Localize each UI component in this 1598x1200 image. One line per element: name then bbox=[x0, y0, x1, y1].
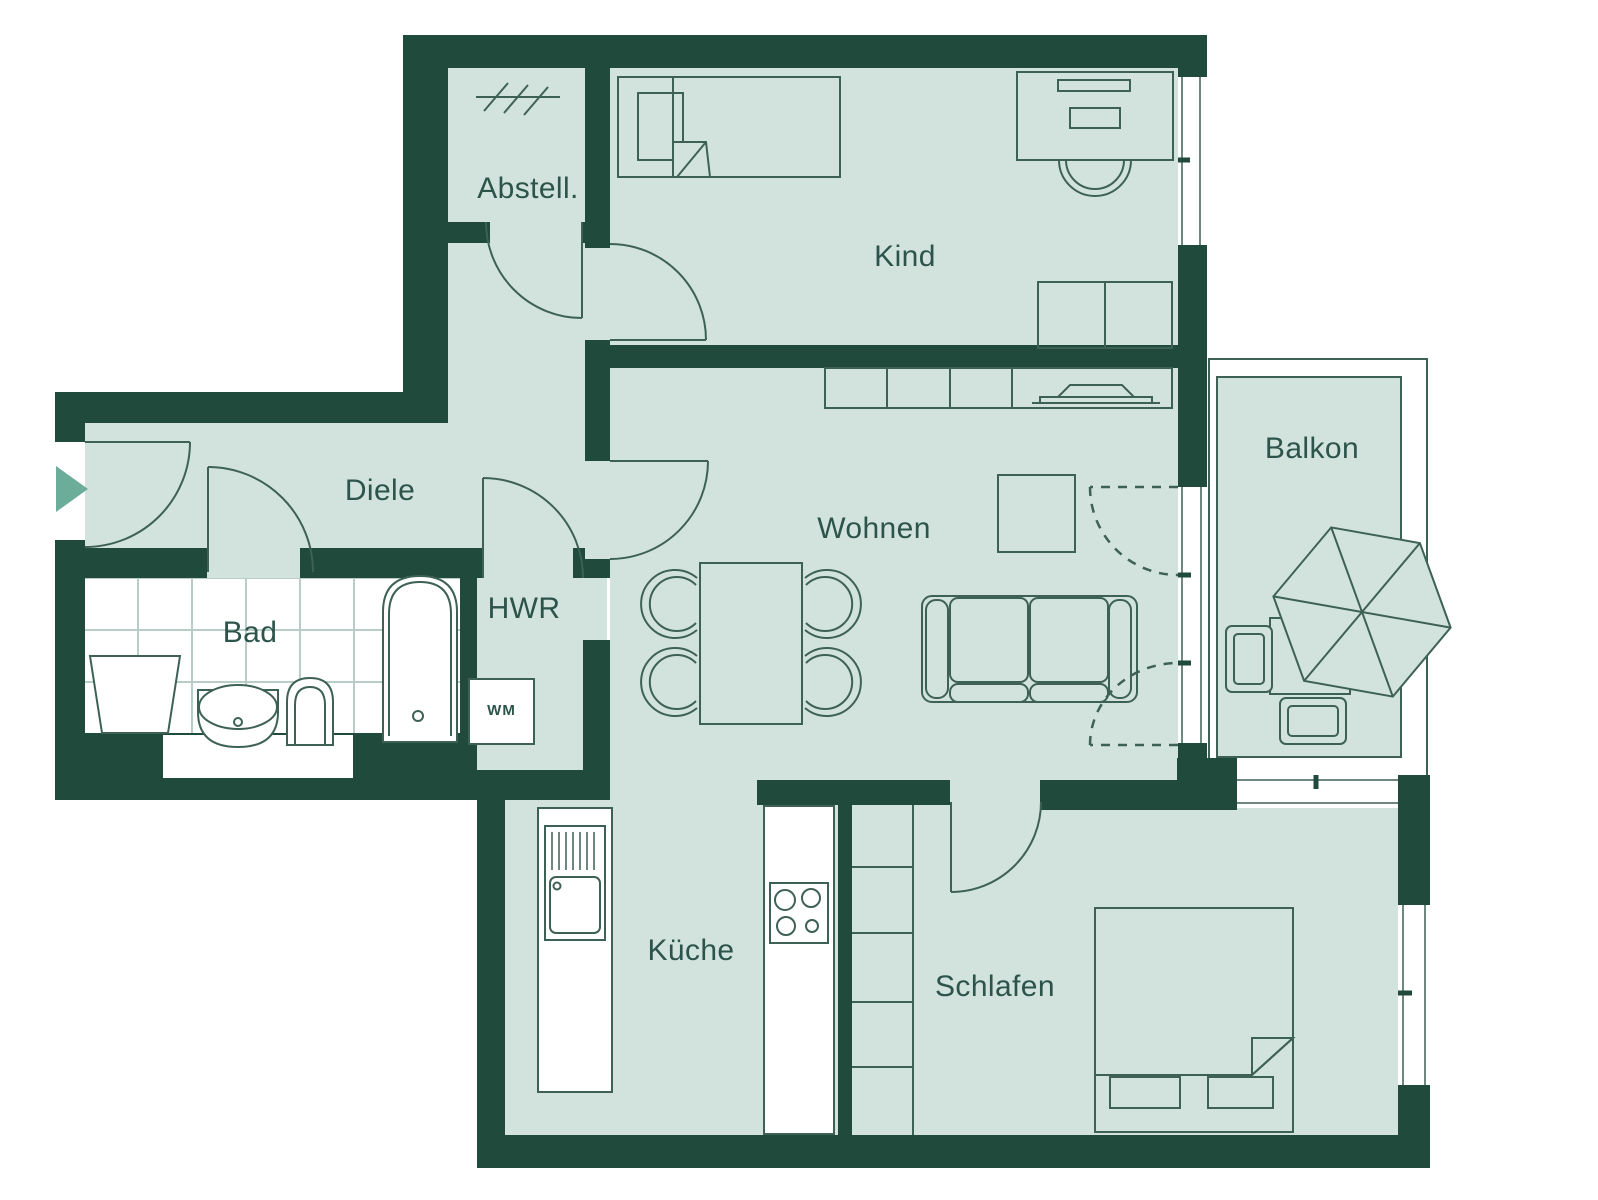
wall-segment bbox=[457, 770, 610, 800]
bathroom-niche bbox=[163, 735, 353, 778]
window-schlafen-balkon bbox=[1237, 775, 1398, 808]
window-balcony-door bbox=[1178, 487, 1205, 743]
room-floor-kind bbox=[610, 68, 1178, 345]
wall-segment bbox=[1398, 775, 1430, 905]
wall-segment bbox=[583, 640, 610, 770]
room-label-kueche: Küche bbox=[611, 934, 771, 968]
door-opening-schlafen bbox=[950, 780, 1040, 810]
room-label-kind: Kind bbox=[845, 240, 965, 274]
room-label-abstell: Abstell. bbox=[448, 172, 608, 206]
wall-segment bbox=[838, 805, 852, 1135]
door-opening-kind bbox=[585, 248, 610, 340]
wall-segment bbox=[757, 780, 950, 805]
entrance-arrow-icon bbox=[56, 466, 88, 512]
wall-segment bbox=[1178, 68, 1207, 77]
kitchen-counter-right bbox=[763, 805, 835, 1135]
wall-segment bbox=[1398, 1085, 1430, 1168]
washing-machine-label: WM bbox=[468, 702, 535, 719]
room-label-schlafen: Schlafen bbox=[915, 970, 1075, 1004]
wall-segment bbox=[55, 392, 448, 423]
wall-segment bbox=[403, 35, 448, 423]
room-label-balkon: Balkon bbox=[1232, 432, 1392, 466]
room-floor-wohnen bbox=[610, 368, 1178, 780]
room-label-bad: Bad bbox=[200, 616, 300, 650]
window-kind bbox=[1178, 77, 1207, 245]
door-opening-bad bbox=[207, 548, 300, 578]
room-label-hwr: HWR bbox=[464, 592, 584, 626]
wall-segment bbox=[1178, 743, 1207, 810]
wall-segment bbox=[477, 1135, 1430, 1168]
wall-segment bbox=[610, 345, 1207, 368]
kitchen-counter-left bbox=[537, 807, 613, 1093]
wall-segment bbox=[477, 800, 505, 1168]
wall-segment bbox=[1178, 245, 1207, 365]
wall-segment bbox=[1040, 780, 1177, 810]
wall-segment bbox=[1178, 365, 1207, 487]
window-schlafen bbox=[1398, 905, 1430, 1085]
door-opening-abstell bbox=[490, 222, 582, 243]
door-opening-wohnen bbox=[585, 461, 610, 559]
floor-plan: Abstell. Kind Diele Bad HWR Wohnen Balko… bbox=[0, 0, 1598, 1200]
room-label-wohnen: Wohnen bbox=[794, 512, 954, 546]
wall-segment bbox=[403, 35, 1207, 68]
bathroom-floor bbox=[85, 578, 460, 733]
door-opening-hwr bbox=[483, 548, 573, 578]
room-label-diele: Diele bbox=[310, 474, 450, 508]
